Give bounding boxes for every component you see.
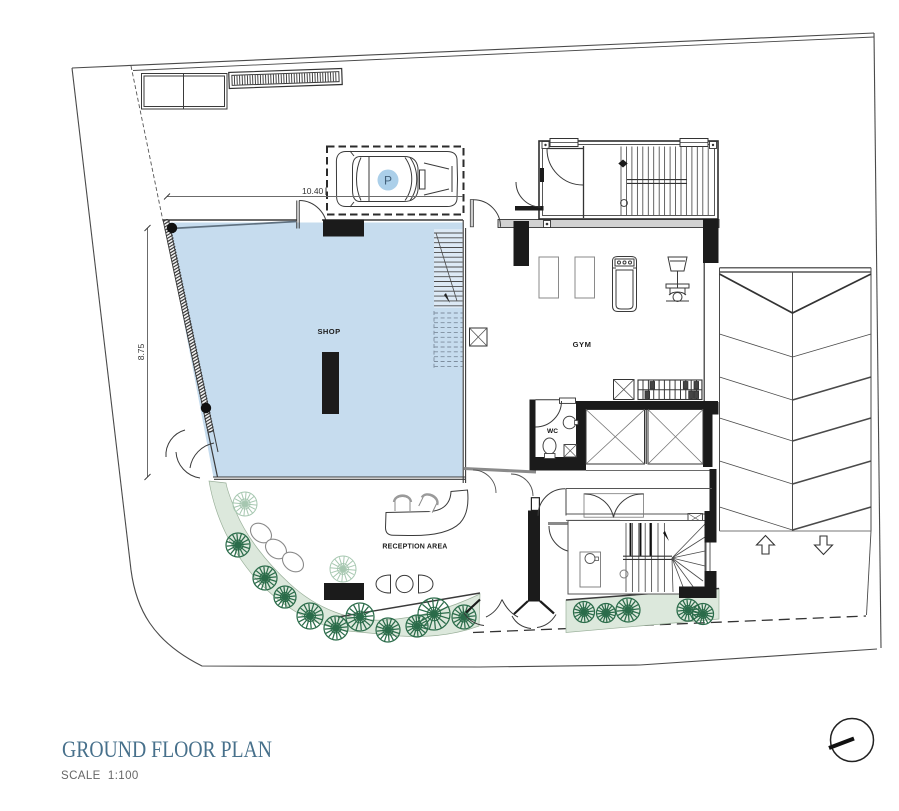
svg-text:RECEPTION AREA: RECEPTION AREA: [382, 544, 447, 551]
svg-text:8.75: 8.75: [136, 343, 146, 360]
svg-text:GYM: GYM: [573, 340, 592, 349]
svg-text:10.40: 10.40: [302, 186, 324, 196]
svg-text:SCALE 1:100: SCALE 1:100: [61, 770, 139, 782]
svg-text:WC: WC: [547, 428, 558, 435]
svg-text:P: P: [384, 174, 392, 188]
svg-text:SHOP: SHOP: [317, 327, 340, 336]
svg-text:GROUND FLOOR PLAN: GROUND FLOOR PLAN: [62, 737, 272, 762]
